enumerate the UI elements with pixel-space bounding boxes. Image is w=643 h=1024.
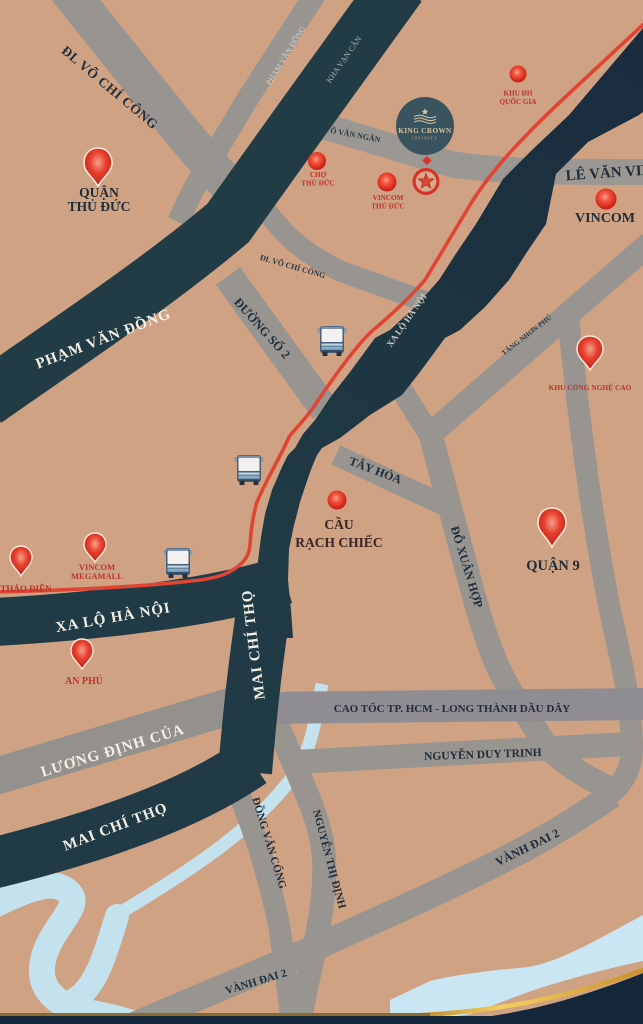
svg-text:VINCOM: VINCOM bbox=[575, 211, 635, 226]
svg-text:QUẬN 9: QUẬN 9 bbox=[526, 557, 580, 574]
svg-text:KHU CÔNG NGHỆ CAO: KHU CÔNG NGHỆ CAO bbox=[549, 382, 632, 392]
svg-text:CẦU: CẦU bbox=[324, 517, 353, 532]
svg-text:INFINITY: INFINITY bbox=[412, 136, 438, 141]
svg-text:THỦ ĐỨC: THỦ ĐỨC bbox=[301, 178, 334, 188]
svg-text:THẢO ĐIỀN: THẢO ĐIỀN bbox=[0, 584, 52, 594]
svg-text:THỦ ĐỨC: THỦ ĐỨC bbox=[68, 199, 131, 214]
svg-text:KING CROWN: KING CROWN bbox=[398, 127, 452, 135]
svg-text:QUỐC GIA: QUỐC GIA bbox=[500, 96, 538, 106]
svg-text:THỦ ĐỨC: THỦ ĐỨC bbox=[371, 201, 404, 211]
svg-text:VINCOM: VINCOM bbox=[373, 194, 404, 202]
svg-text:CHỢ: CHỢ bbox=[310, 171, 327, 179]
svg-text:AN PHÚ: AN PHÚ bbox=[65, 675, 103, 687]
svg-text:RẠCH CHIẾC: RẠCH CHIẾC bbox=[295, 535, 382, 550]
svg-text:KHU ĐH: KHU ĐH bbox=[504, 90, 533, 98]
svg-text:QUẬN: QUẬN bbox=[79, 185, 119, 200]
svg-text:MEGAMALL: MEGAMALL bbox=[71, 571, 123, 581]
svg-text:CAO TỐC TP. HCM - LONG THÀNH D: CAO TỐC TP. HCM - LONG THÀNH DẦU DÂY bbox=[334, 702, 570, 715]
